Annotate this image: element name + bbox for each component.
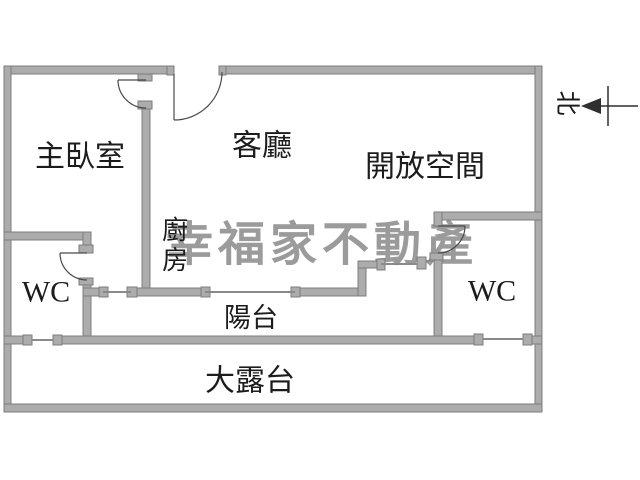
room-label-kitchen: 廚房 (159, 216, 186, 276)
north-arrow-icon (581, 86, 638, 126)
north-label: 北 (553, 90, 579, 115)
room-label-wc-left: WC (22, 276, 70, 308)
room-label-terrace: 大露台 (205, 365, 295, 397)
room-label-open-space: 開放空間 (365, 151, 485, 183)
floor-plan-drawing (0, 0, 640, 480)
room-label-master-bedroom: 主臥室 (35, 141, 125, 173)
entry-door-swing (174, 72, 222, 120)
wc-right-door-swing (438, 226, 465, 253)
room-label-wc-right: WC (468, 275, 516, 307)
room-label-living-room: 客廳 (232, 130, 292, 162)
room-label-balcony: 陽台 (224, 304, 278, 332)
floor-plan: 幸福家不動產 (0, 0, 640, 480)
